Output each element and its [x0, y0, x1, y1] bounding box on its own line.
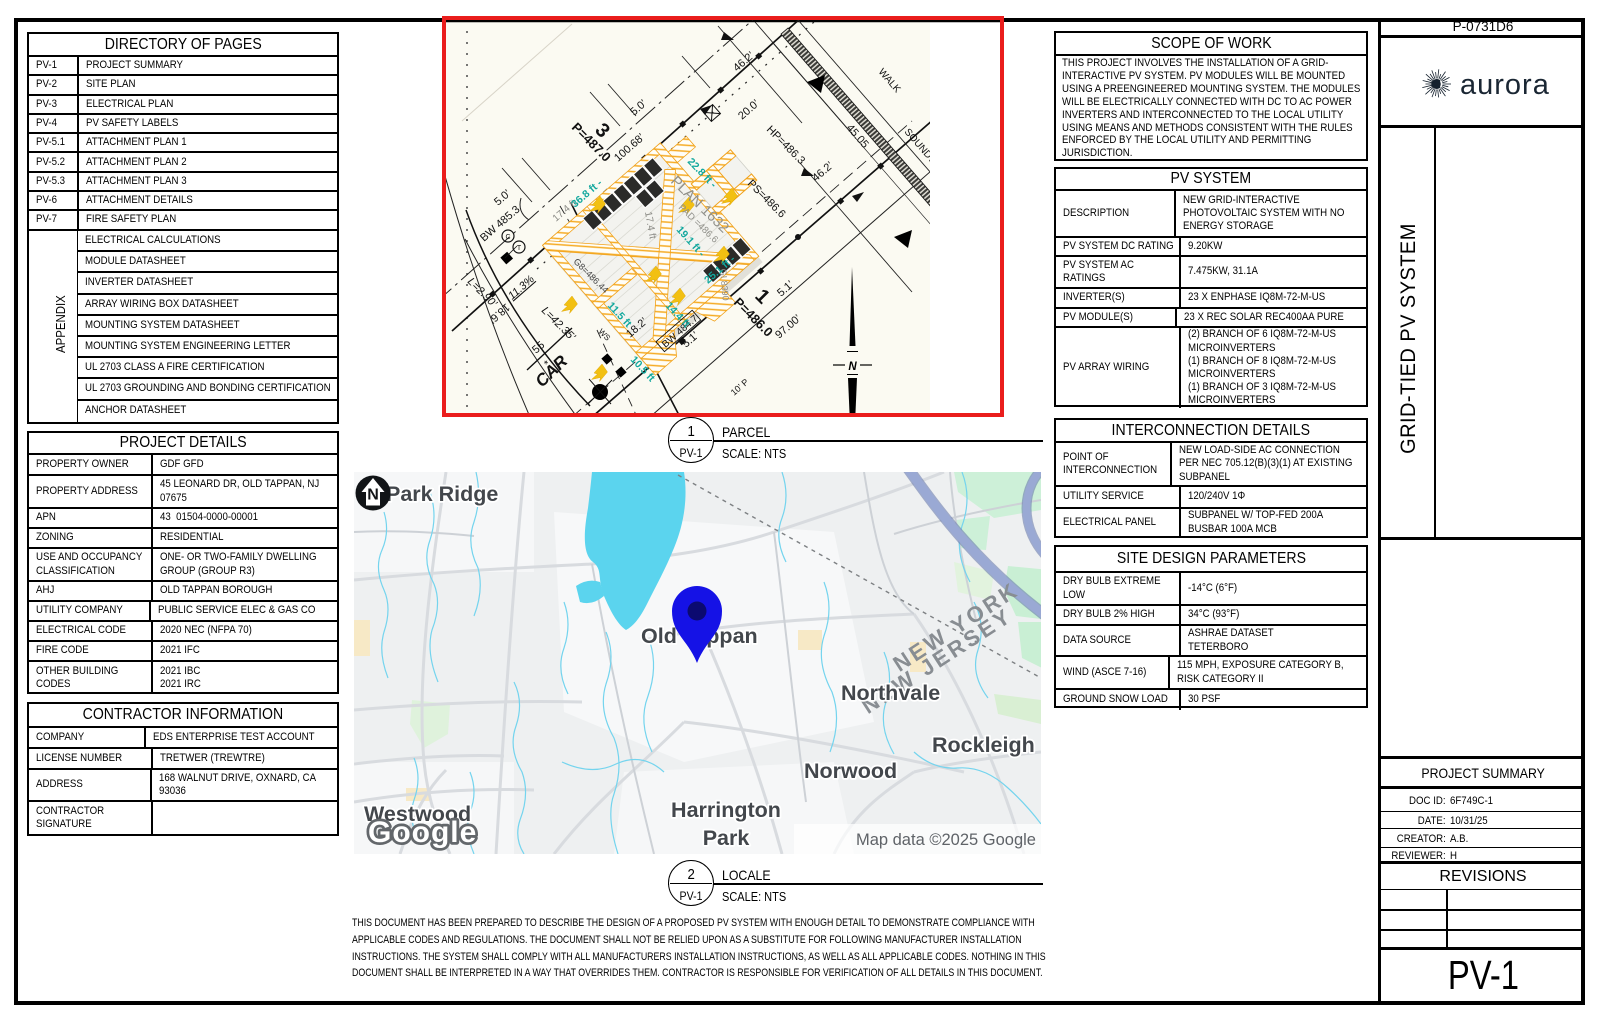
svg-text:Google: Google: [368, 816, 477, 849]
svg-text:T: T: [517, 245, 522, 252]
svg-text:Rockleigh: Rockleigh: [932, 733, 1035, 757]
svg-text:Park Ridge: Park Ridge: [386, 482, 498, 506]
svg-text:Northvale: Northvale: [841, 681, 940, 705]
svg-text:C: C: [505, 234, 510, 241]
svg-text:Norwood: Norwood: [804, 759, 897, 783]
svg-text:Map data ©2025 Google: Map data ©2025 Google: [856, 831, 1036, 849]
svg-text:aurora: aurora: [1460, 69, 1550, 101]
svg-text:Park: Park: [703, 826, 750, 850]
svg-text:N: N: [367, 487, 379, 504]
svg-text:Harrington: Harrington: [671, 798, 781, 822]
svg-text:N: N: [848, 361, 857, 373]
